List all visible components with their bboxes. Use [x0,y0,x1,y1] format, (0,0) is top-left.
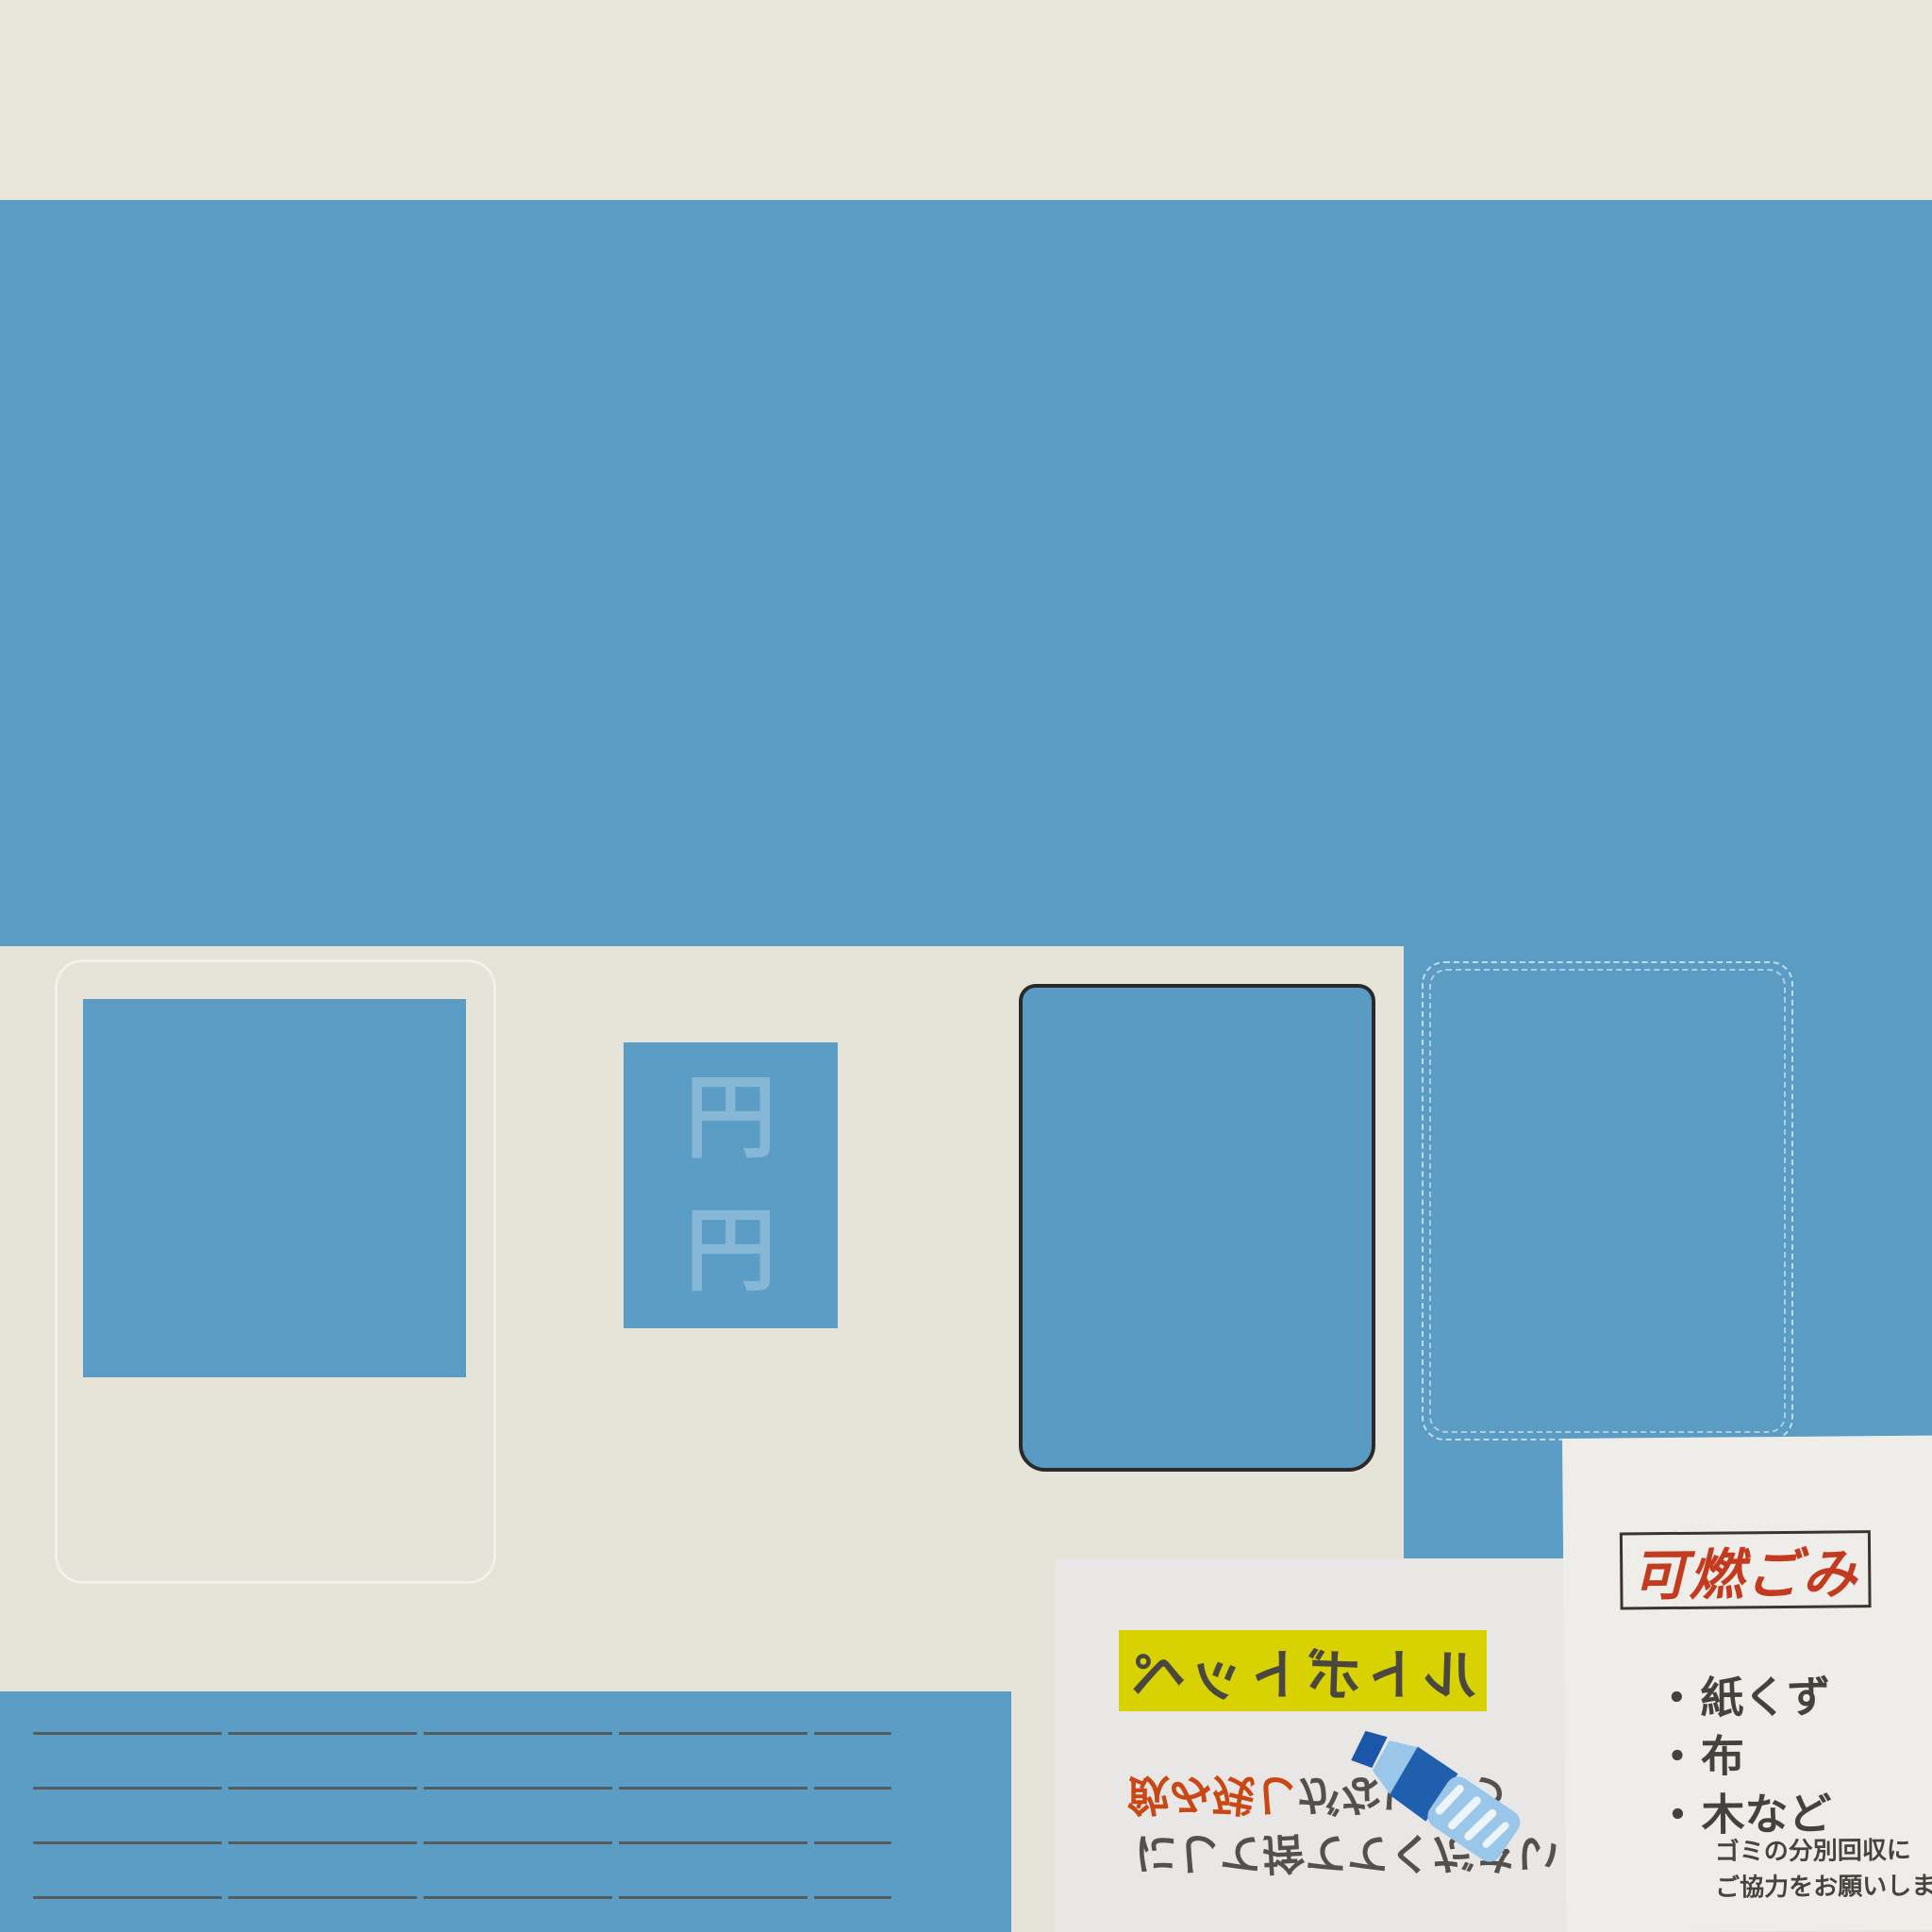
footer-line: ゴミの分別回収に [1715,1832,1932,1870]
list-item-label: 布 [1701,1731,1744,1780]
vent-line [33,1732,891,1735]
bullet-mark: ・ [1655,1674,1698,1723]
list-item: ・布 [1656,1726,1832,1787]
vent-line [33,1787,891,1790]
dark-bordered-blue-card [1019,984,1375,1472]
footer-line: ご協力をお願いします [1715,1868,1932,1906]
chalk-price-panel: 円 円 [624,1042,838,1328]
bullet-mark: ・ [1656,1732,1699,1781]
faint-yen-glyph: 円 [686,1074,776,1164]
list-item-label: 木など [1701,1790,1831,1840]
burnable-title-box: 可燃ごみ [1620,1530,1872,1609]
burnable-item-list: ・紙くず ・布 ・木など [1655,1668,1832,1845]
texture-sheet: 円 円 ペットボトル 飲み残しがないよう にして捨ててください 可燃ごみ [0,0,1932,1932]
bullet-mark: ・ [1656,1790,1699,1840]
pet-bottle-notice: ペットボトル 飲み残しがないよう にして捨ててください [1056,1558,1585,1932]
upper-blue-panel [0,200,1932,946]
burnable-title: 可燃ごみ [1632,1529,1859,1610]
vent-line [33,1841,891,1844]
list-item: ・紙くず [1655,1668,1831,1728]
burnable-footer-text: ゴミの分別回収に ご協力をお願いします [1715,1832,1932,1906]
vent-line [33,1896,891,1899]
pet-bottle-banner: ペットボトル [1119,1630,1487,1711]
faint-yen-glyph: 円 [686,1207,776,1297]
top-cream-strip [0,0,1932,200]
left-blue-rectangle [83,999,466,1377]
burnable-waste-notice: 可燃ごみ ・紙くず ・布 ・木など ゴミの分別回収に ご協力をお願いします [1562,1436,1932,1932]
list-item-label: 紙くず [1700,1673,1830,1723]
stitched-frame-outline [1422,961,1793,1441]
pet-notice-line1-accent: 飲み残し [1127,1778,1297,1826]
